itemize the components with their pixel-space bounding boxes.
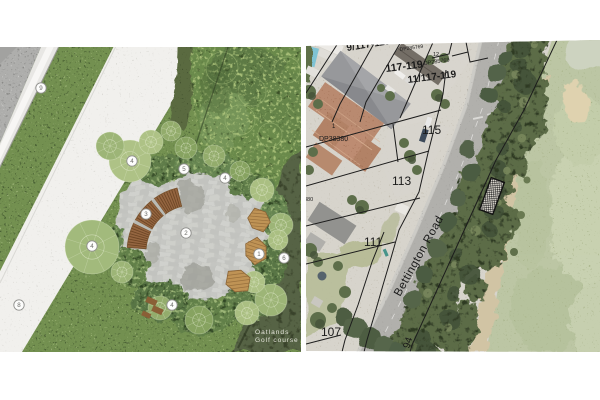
svg-text:4: 4 <box>223 175 227 182</box>
svg-text:Oatlands: Oatlands <box>255 329 289 336</box>
svg-text:115: 115 <box>422 123 441 137</box>
svg-text:3: 3 <box>144 211 148 218</box>
svg-text:113: 113 <box>392 174 411 188</box>
svg-text:DP38380: DP38380 <box>319 136 348 143</box>
svg-text:1: 1 <box>257 251 261 258</box>
svg-text:12: 12 <box>433 52 439 58</box>
svg-text:4: 4 <box>170 302 174 309</box>
svg-text:9: 9 <box>39 85 43 92</box>
svg-text:111: 111 <box>364 235 383 249</box>
svg-text:107: 107 <box>321 325 341 339</box>
svg-text:Golf course: Golf course <box>255 337 299 344</box>
svg-text:8: 8 <box>17 302 21 309</box>
svg-text:2: 2 <box>184 230 188 237</box>
svg-text:6: 6 <box>282 255 286 262</box>
svg-text:4: 4 <box>130 158 134 165</box>
svg-text:5: 5 <box>182 166 186 173</box>
svg-text:4: 4 <box>90 243 94 250</box>
